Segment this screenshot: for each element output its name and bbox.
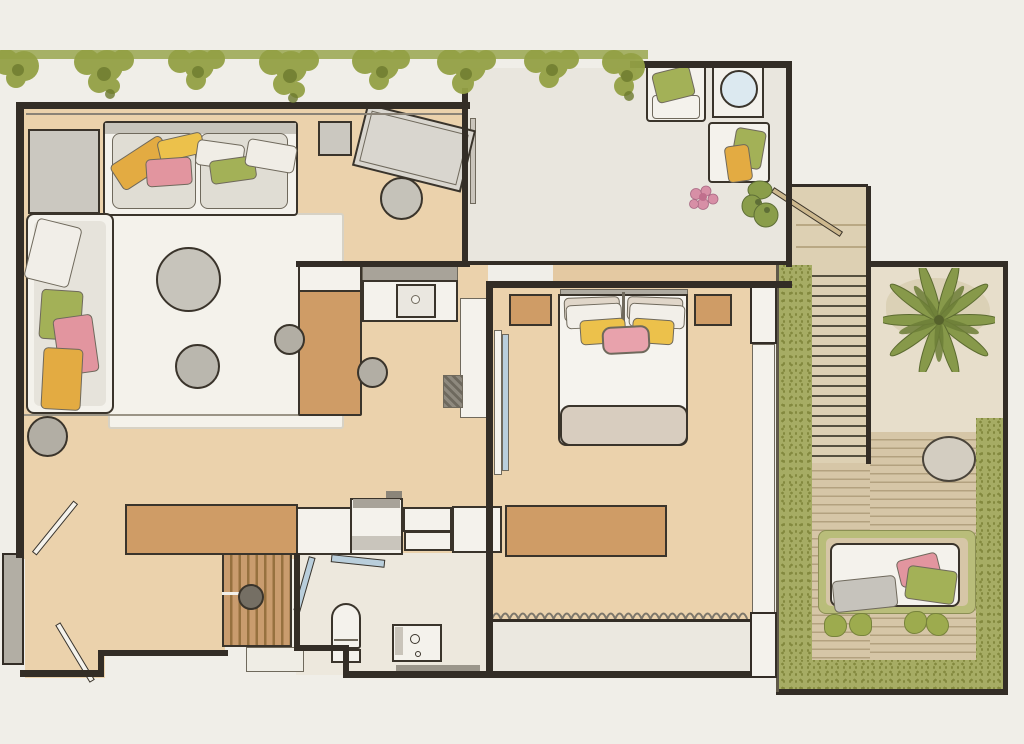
desk-chair (380, 177, 423, 220)
toilet-seat-line (334, 639, 358, 641)
garden-hedge-bottom (778, 660, 1008, 692)
nightstand (509, 294, 552, 326)
palm-tree (883, 268, 995, 372)
wall-segment (776, 689, 1008, 695)
leaning-mirror-panel (494, 330, 502, 475)
green-plant (740, 178, 780, 232)
kitchen-stool[interactable] (274, 324, 305, 355)
wall-segment (294, 645, 349, 651)
pink-flower-plant (686, 184, 722, 214)
cabinet-white (404, 531, 452, 551)
entry-hall-floor (25, 553, 225, 653)
vanity-faucet-dot (415, 651, 421, 657)
appliance (443, 375, 463, 408)
wall-segment (16, 102, 24, 558)
garden-shrub (849, 613, 872, 636)
cabinet-white (403, 507, 452, 532)
cabinet-tab (386, 491, 402, 498)
kitchen-island-table (298, 290, 362, 416)
shower-drain (238, 584, 264, 610)
cabinet-white (452, 506, 502, 553)
vanity-faucet-dot (410, 634, 420, 644)
wall-pier-gray (2, 553, 24, 665)
stair-steps (812, 267, 868, 463)
wall-segment (786, 61, 792, 267)
window-glazing-line (26, 113, 464, 115)
sliding-glass-door[interactable] (752, 344, 775, 614)
bed-foot-blanket (560, 405, 688, 446)
bedroom-dresser (505, 505, 667, 557)
kitchen-stool[interactable] (357, 357, 388, 388)
wall-segment (343, 671, 757, 678)
wall-segment (486, 281, 792, 288)
garden-shrub (926, 613, 949, 636)
sink-faucet-dot (411, 295, 420, 304)
vanity-shade (395, 627, 403, 655)
coffee-table-small (175, 344, 220, 389)
wall-segment (1003, 261, 1008, 694)
wall-segment (866, 186, 871, 464)
lounge-cushion-green (904, 565, 958, 606)
lounge-pillow-gray (832, 575, 899, 614)
glass-wall-pier (750, 286, 777, 344)
wall-segment (792, 184, 868, 187)
coffee-table-large (156, 247, 221, 312)
wall-segment (20, 670, 104, 677)
terrace-basin (720, 70, 758, 108)
nightstand (694, 294, 732, 326)
floor-pouf (27, 416, 68, 457)
sofa-pillow-pink (145, 156, 193, 187)
garden-hedge-left (778, 265, 812, 692)
toilet-bowl (331, 603, 361, 649)
daybed-pillow-yellow (40, 347, 83, 411)
floor-plan-canvas (0, 0, 1024, 744)
garden-boulder (922, 436, 976, 482)
wall-segment (343, 648, 349, 676)
leaning-mirror-glass (502, 334, 509, 471)
cabinet-gray-strip (352, 536, 401, 550)
side-stool-square (318, 121, 352, 156)
wall-cabinet (28, 129, 100, 214)
glass-wall-pier (750, 612, 777, 678)
bed-pillow-pink (601, 325, 650, 355)
kitchen-counter (298, 264, 362, 292)
wall-segment (630, 61, 792, 68)
floor-divider-line (22, 414, 342, 416)
balcony-floor (490, 620, 753, 677)
cabinet-white (296, 507, 352, 555)
wall-segment (102, 650, 228, 656)
wall-segment (488, 619, 754, 622)
vanity-sink (392, 624, 442, 662)
entry-wardrobe (125, 504, 298, 555)
wall-segment (462, 88, 468, 267)
hanging-foliage-border (0, 50, 652, 106)
cabinet-gray-strip (353, 499, 400, 508)
wall-segment (294, 553, 300, 651)
garden-shrub (824, 614, 847, 637)
wall-segment (296, 261, 470, 267)
wall-segment (466, 261, 792, 265)
wall-segment (866, 261, 1007, 267)
